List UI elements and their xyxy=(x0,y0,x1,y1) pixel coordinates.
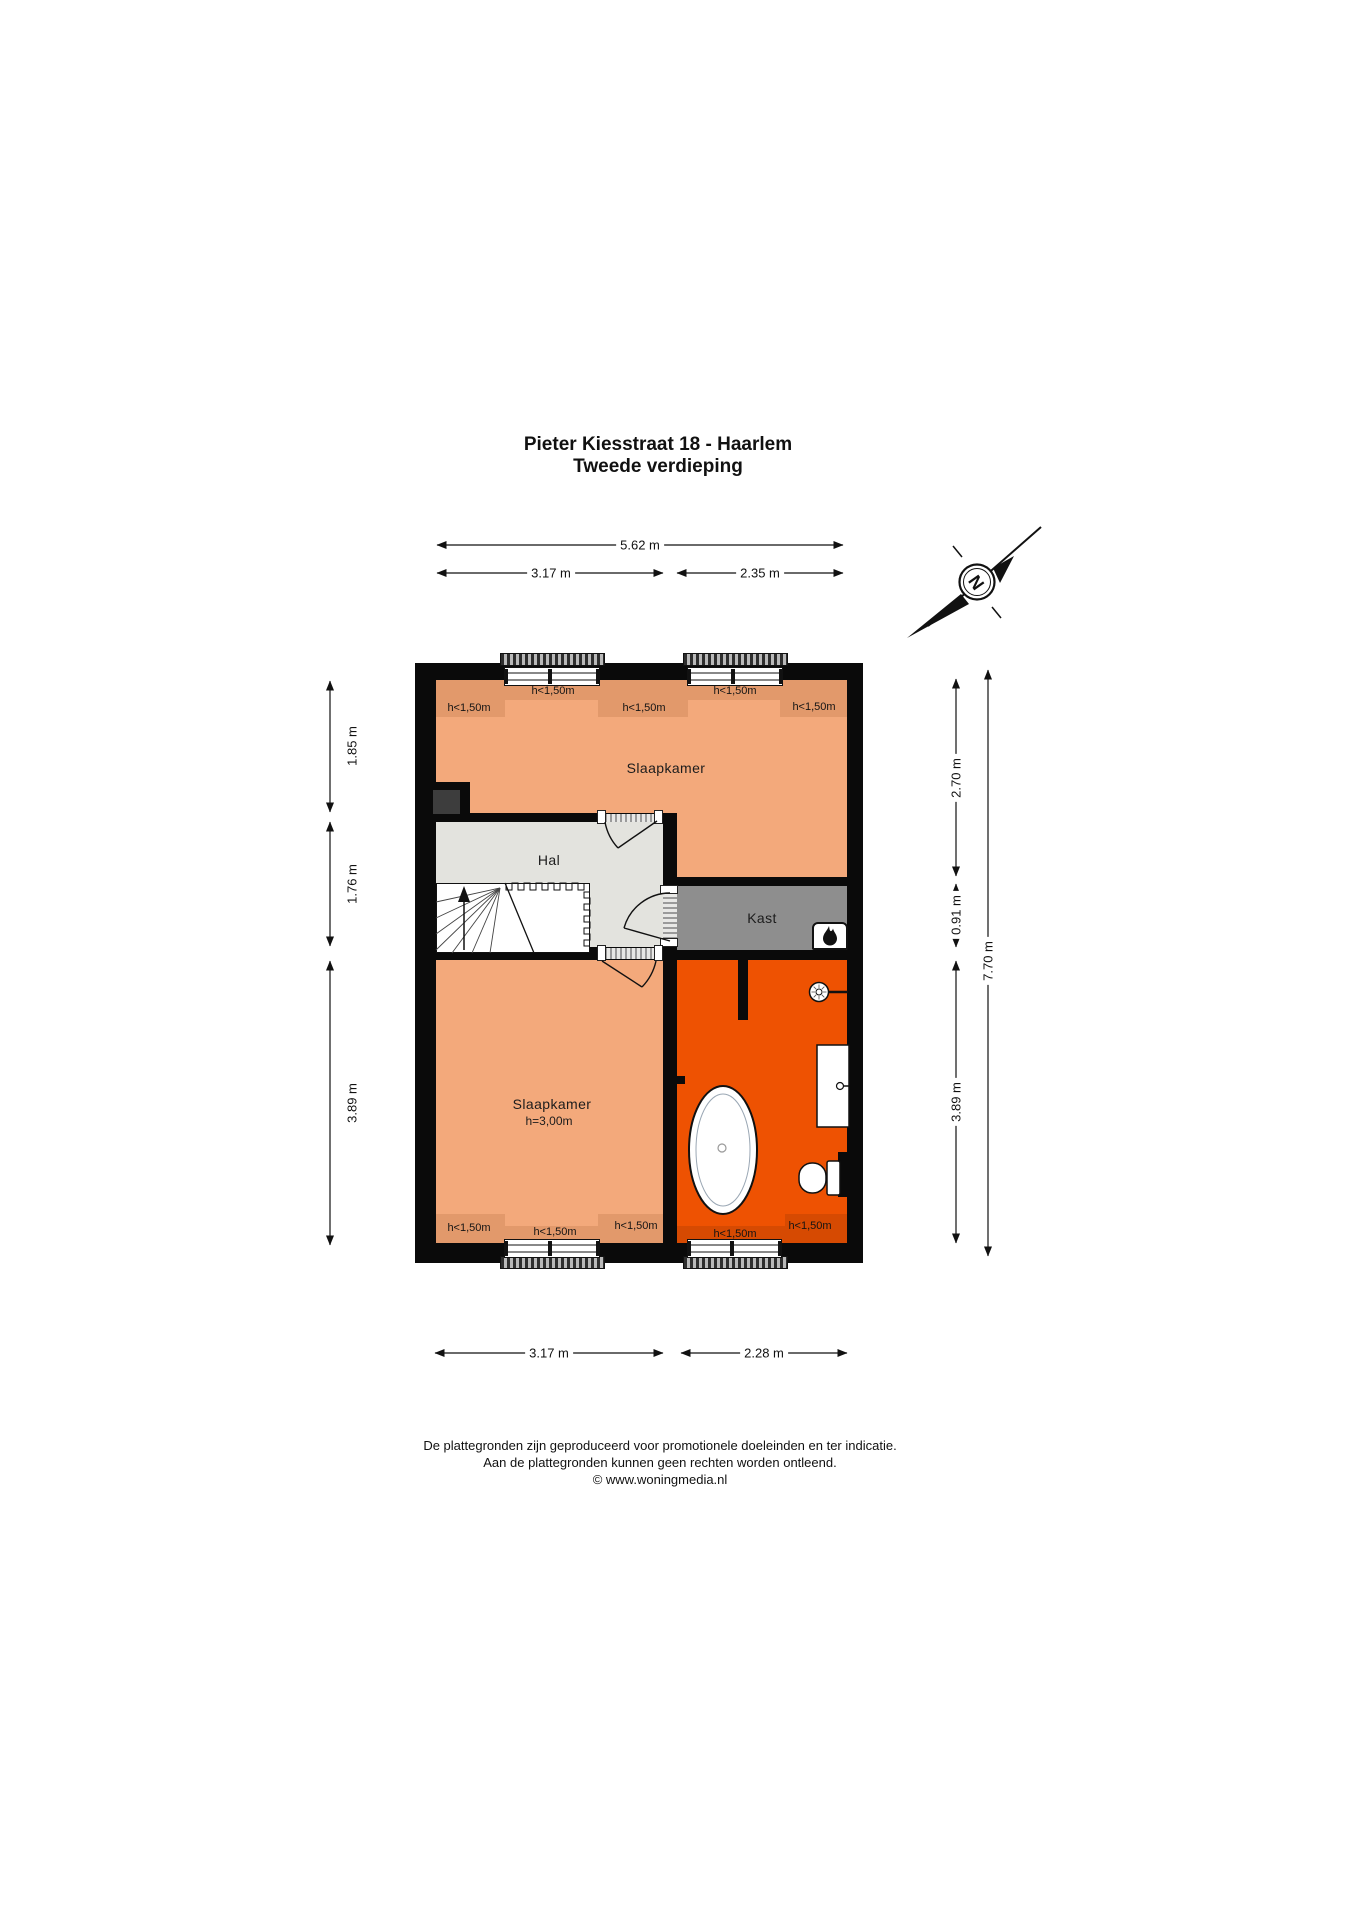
dim-left-1: 1.85 m xyxy=(345,726,360,766)
page-subtitle: Tweede verdieping xyxy=(0,456,1337,478)
low-headroom-label: h<1,50m xyxy=(447,1222,490,1234)
label-bedroom-bottom-height: h=3,00m xyxy=(525,1114,572,1128)
low-headroom-label: h<1,50m xyxy=(533,1226,576,1238)
dim-left-2: 1.76 m xyxy=(345,864,360,904)
dim-right-total: 7.70 m xyxy=(981,937,996,985)
low-headroom-label: h<1,50m xyxy=(622,702,665,714)
plan-linework: N xyxy=(0,0,1358,1920)
low-headroom-label: h<1,50m xyxy=(788,1220,831,1232)
stairs-up-arrow xyxy=(458,886,470,902)
toilet xyxy=(799,1161,840,1195)
label-closet: Kast xyxy=(747,910,777,926)
label-bedroom-bottom: Slaapkamer xyxy=(513,1096,592,1112)
dim-right-1: 2.70 m xyxy=(949,754,964,802)
dim-bottom-left: 3.17 m xyxy=(525,1346,573,1361)
low-headroom-label: h<1,50m xyxy=(614,1220,657,1232)
footer-disclaimer-line1: De plattegronden zijn geproduceerd voor … xyxy=(0,1437,1339,1454)
door-swings xyxy=(602,821,670,987)
flame-icon xyxy=(823,926,837,946)
compass: N xyxy=(907,527,1041,638)
dim-top-right: 2.35 m xyxy=(736,566,784,581)
stairs-detail xyxy=(436,883,590,953)
dim-bottom-right: 2.28 m xyxy=(740,1346,788,1361)
low-headroom-label: h<1,50m xyxy=(713,685,756,697)
label-bedroom-top: Slaapkamer xyxy=(627,760,706,776)
shower-head xyxy=(810,983,849,1002)
dimension-lines xyxy=(330,545,988,1353)
dim-left-3: 3.89 m xyxy=(345,1083,360,1123)
washbasin xyxy=(817,1045,849,1127)
low-headroom-label: h<1,50m xyxy=(531,685,574,697)
footer-copyright: © www.woningmedia.nl xyxy=(0,1471,1339,1488)
low-headroom-label: h<1,50m xyxy=(792,701,835,713)
dim-right-3: 3.89 m xyxy=(949,1078,964,1126)
footer-disclaimer-line2: Aan de plattegronden kunnen geen rechten… xyxy=(0,1454,1339,1471)
dim-top-left: 3.17 m xyxy=(527,566,575,581)
floorplan-page: Pieter Kiesstraat 18 - Haarlem Tweede ve… xyxy=(0,0,1358,1920)
dim-right-2: 0.91 m xyxy=(949,891,964,939)
low-headroom-label: h<1,50m xyxy=(713,1228,756,1240)
low-headroom-label: h<1,50m xyxy=(447,702,490,714)
page-title: Pieter Kiesstraat 18 - Haarlem xyxy=(0,434,1337,456)
bathtub xyxy=(689,1086,757,1214)
dim-top-total: 5.62 m xyxy=(616,538,664,553)
label-hall: Hal xyxy=(538,852,560,868)
